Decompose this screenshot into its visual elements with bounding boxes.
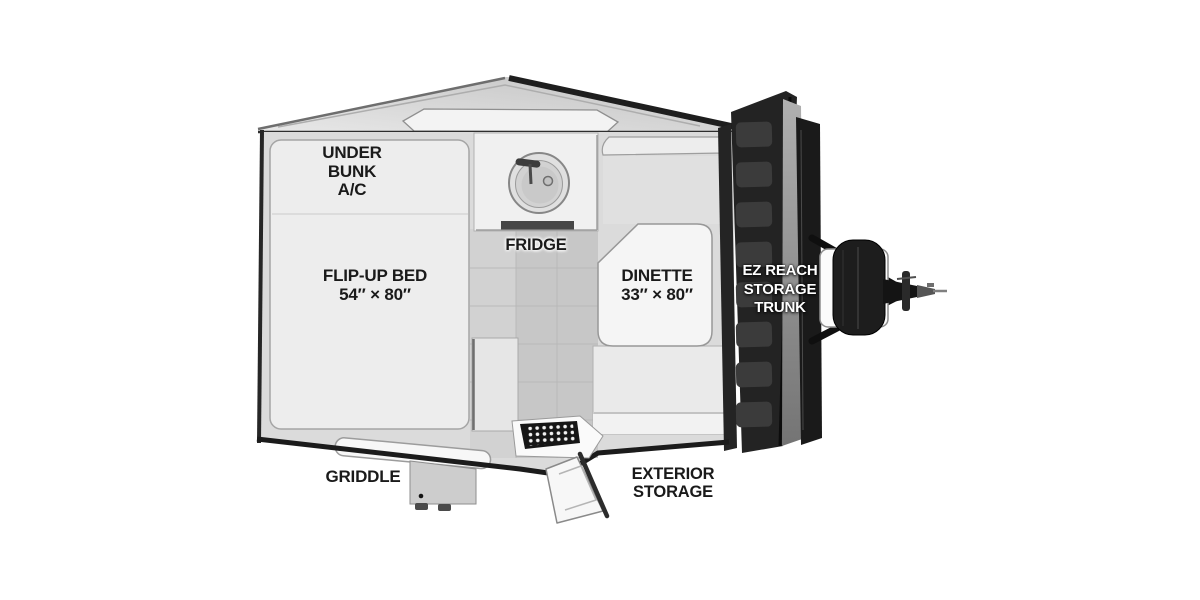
label-flip-up-bed: FLIP-UP BED 54″ × 80″ bbox=[323, 267, 427, 304]
griddle-box bbox=[410, 461, 476, 511]
sink-icon bbox=[509, 153, 569, 213]
kitchen-cabinet bbox=[472, 338, 518, 431]
label-line: DINETTE bbox=[621, 267, 693, 286]
propane-tank bbox=[833, 240, 885, 335]
roof bbox=[258, 77, 737, 133]
hitch-coupler bbox=[883, 271, 947, 311]
label-line: EZ REACH bbox=[742, 262, 817, 281]
label-exterior-storage: EXTERIOR STORAGE bbox=[632, 466, 715, 501]
label-line: TRUNK bbox=[742, 299, 817, 318]
label-ez-reach-storage-trunk: EZ REACH STORAGE TRUNK bbox=[742, 262, 817, 318]
label-line: STORAGE bbox=[632, 484, 715, 502]
label-line: A/C bbox=[322, 181, 381, 200]
label-line: BUNK bbox=[322, 163, 381, 182]
label-line: STORAGE bbox=[742, 281, 817, 300]
label-under-bunk-ac: UNDER BUNK A/C bbox=[322, 144, 381, 200]
label-fridge: FRIDGE bbox=[505, 237, 566, 255]
label-dinette: DINETTE 33″ × 80″ bbox=[621, 267, 693, 304]
label-line: EXTERIOR bbox=[632, 466, 715, 484]
label-line: GRIDDLE bbox=[325, 468, 400, 487]
fridge-strip bbox=[501, 221, 574, 230]
label-line: FRIDGE bbox=[505, 237, 566, 255]
label-line: 54″ × 80″ bbox=[323, 286, 427, 305]
floorplan-svg bbox=[0, 0, 1200, 600]
floorplan-page: UNDER BUNK A/C FLIP-UP BED 54″ × 80″ FRI… bbox=[0, 0, 1200, 600]
tongue-a-frame bbox=[812, 238, 947, 341]
label-line: FLIP-UP BED bbox=[323, 267, 427, 286]
roof-vent-panel bbox=[403, 109, 618, 132]
label-line: 33″ × 80″ bbox=[621, 286, 693, 305]
label-griddle: GRIDDLE bbox=[325, 468, 400, 487]
label-line: UNDER bbox=[322, 144, 381, 163]
